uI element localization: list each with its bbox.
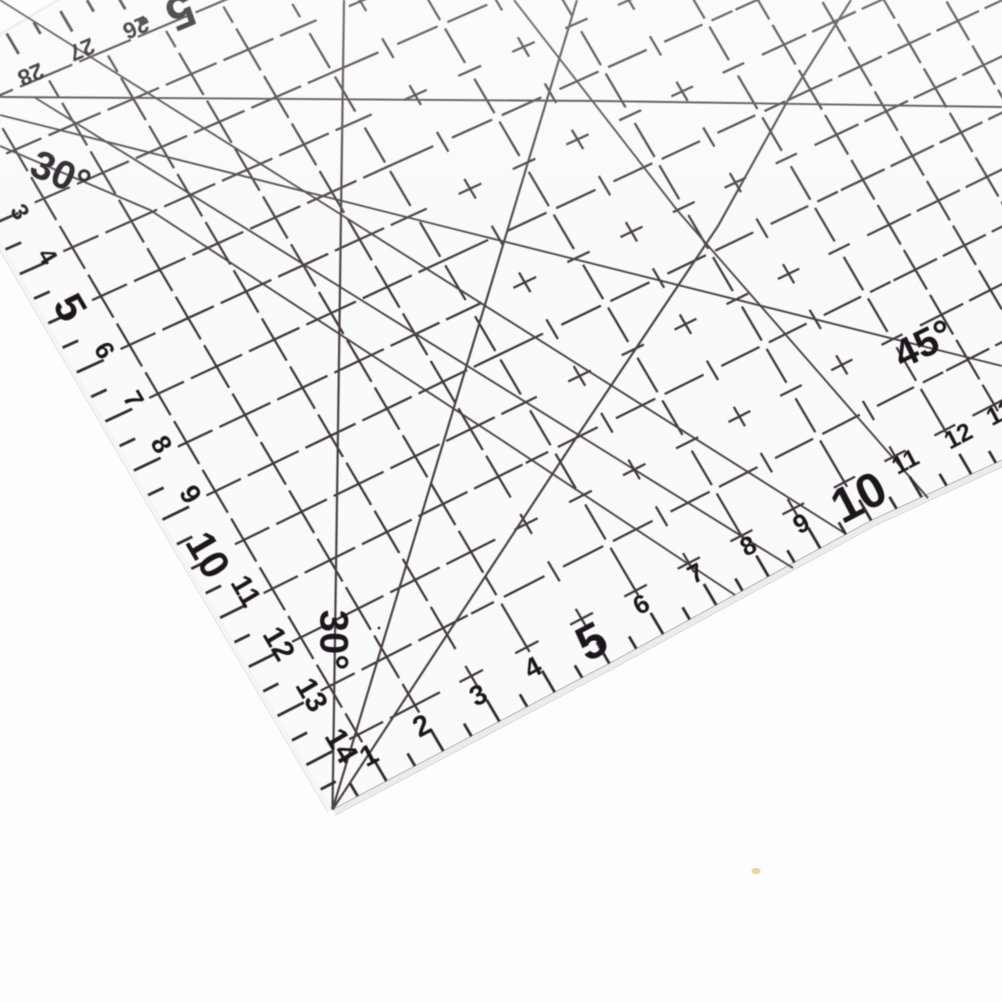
svg-text:30°: 30° xyxy=(312,610,356,671)
